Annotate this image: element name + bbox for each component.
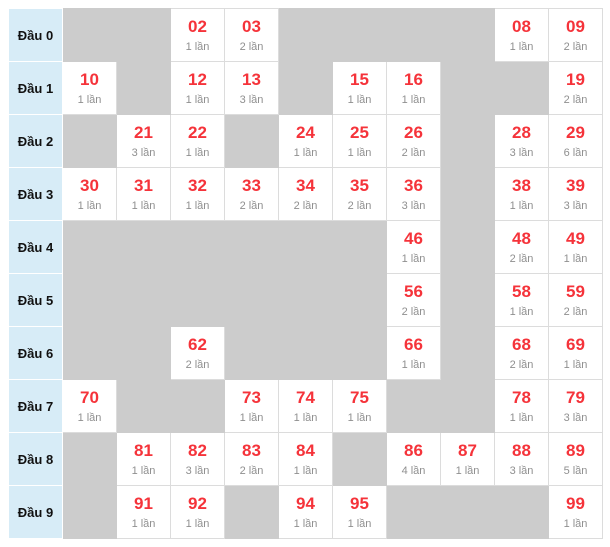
number-cell: 192 lần (549, 62, 603, 115)
cell-number: 10 (63, 70, 116, 90)
table-row: Đầu 8811 lần823 lần832 lần841 lần864 lần… (9, 433, 603, 486)
cell-number: 32 (171, 176, 224, 196)
cell-number: 69 (549, 335, 602, 355)
cell-number: 68 (495, 335, 548, 355)
empty-cell (387, 486, 441, 539)
empty-cell (441, 221, 495, 274)
cell-number: 92 (171, 494, 224, 514)
cell-count: 1 lần (387, 253, 440, 266)
cell-number: 66 (387, 335, 440, 355)
number-cell: 811 lần (117, 433, 171, 486)
empty-cell (441, 168, 495, 221)
number-cell: 622 lần (171, 327, 225, 380)
cell-number: 19 (549, 70, 602, 90)
cell-number: 78 (495, 388, 548, 408)
number-cell: 921 lần (171, 486, 225, 539)
cell-count: 2 lần (225, 465, 278, 478)
table-row: Đầu 9911 lần921 lần941 lần951 lần991 lần (9, 486, 603, 539)
empty-cell (387, 380, 441, 433)
empty-cell (441, 62, 495, 115)
cell-number: 26 (387, 123, 440, 143)
cell-count: 1 lần (171, 94, 224, 107)
cell-number: 94 (279, 494, 332, 514)
row-header: Đầu 2 (9, 115, 63, 168)
number-cell: 092 lần (549, 9, 603, 62)
cell-count: 2 lần (171, 359, 224, 372)
cell-count: 3 lần (549, 200, 602, 213)
row-header: Đầu 0 (9, 9, 63, 62)
empty-cell (63, 327, 117, 380)
cell-count: 1 lần (441, 465, 494, 478)
page: Đầu 0021 lần032 lần081 lần092 lầnĐầu 110… (0, 0, 610, 547)
number-cell: 241 lần (279, 115, 333, 168)
number-cell: 332 lần (225, 168, 279, 221)
cell-number: 30 (63, 176, 116, 196)
table-row: Đầu 2213 lần221 lần241 lần251 lần262 lần… (9, 115, 603, 168)
number-cell: 691 lần (549, 327, 603, 380)
cell-count: 1 lần (495, 412, 548, 425)
cell-count: 3 lần (387, 200, 440, 213)
cell-count: 1 lần (387, 94, 440, 107)
cell-count: 2 lần (495, 359, 548, 372)
table-row: Đầu 3301 lần311 lần321 lần332 lần342 lần… (9, 168, 603, 221)
row-header: Đầu 6 (9, 327, 63, 380)
empty-cell (333, 327, 387, 380)
row-header: Đầu 1 (9, 62, 63, 115)
cell-number: 56 (387, 282, 440, 302)
number-cell: 363 lần (387, 168, 441, 221)
empty-cell (63, 115, 117, 168)
cell-number: 16 (387, 70, 440, 90)
frequency-table: Đầu 0021 lần032 lần081 lần092 lầnĐầu 110… (8, 8, 603, 539)
number-cell: 342 lần (279, 168, 333, 221)
number-cell: 751 lần (333, 380, 387, 433)
empty-cell (441, 327, 495, 380)
cell-number: 87 (441, 441, 494, 461)
cell-number: 31 (117, 176, 170, 196)
cell-count: 3 lần (225, 94, 278, 107)
empty-cell (333, 221, 387, 274)
cell-count: 1 lần (549, 518, 602, 531)
cell-number: 25 (333, 123, 386, 143)
cell-number: 48 (495, 229, 548, 249)
number-cell: 213 lần (117, 115, 171, 168)
cell-count: 3 lần (495, 147, 548, 160)
cell-count: 1 lần (279, 465, 332, 478)
cell-count: 1 lần (333, 518, 386, 531)
cell-count: 1 lần (63, 94, 116, 107)
cell-count: 3 lần (117, 147, 170, 160)
number-cell: 301 lần (63, 168, 117, 221)
cell-number: 46 (387, 229, 440, 249)
cell-number: 99 (549, 494, 602, 514)
cell-number: 21 (117, 123, 170, 143)
table-row: Đầu 1101 lần121 lần133 lần151 lần161 lần… (9, 62, 603, 115)
cell-number: 89 (549, 441, 602, 461)
number-cell: 283 lần (495, 115, 549, 168)
cell-number: 02 (171, 17, 224, 37)
cell-count: 1 lần (279, 518, 332, 531)
empty-cell (117, 274, 171, 327)
empty-cell (225, 327, 279, 380)
empty-cell (63, 9, 117, 62)
cell-count: 1 lần (63, 412, 116, 425)
cell-number: 28 (495, 123, 548, 143)
cell-count: 2 lần (387, 306, 440, 319)
cell-count: 1 lần (495, 200, 548, 213)
cell-count: 3 lần (171, 465, 224, 478)
empty-cell (225, 221, 279, 274)
cell-number: 73 (225, 388, 278, 408)
cell-count: 2 lần (333, 200, 386, 213)
cell-number: 95 (333, 494, 386, 514)
empty-cell (225, 274, 279, 327)
number-cell: 895 lần (549, 433, 603, 486)
empty-cell (333, 274, 387, 327)
cell-number: 15 (333, 70, 386, 90)
row-header: Đầu 5 (9, 274, 63, 327)
number-cell: 871 lần (441, 433, 495, 486)
number-cell: 832 lần (225, 433, 279, 486)
cell-count: 5 lần (549, 465, 602, 478)
row-header: Đầu 8 (9, 433, 63, 486)
empty-cell (63, 274, 117, 327)
number-cell: 781 lần (495, 380, 549, 433)
number-cell: 352 lần (333, 168, 387, 221)
empty-cell (441, 274, 495, 327)
cell-number: 81 (117, 441, 170, 461)
number-cell: 841 lần (279, 433, 333, 486)
cell-number: 29 (549, 123, 602, 143)
empty-cell (117, 380, 171, 433)
empty-cell (63, 486, 117, 539)
cell-number: 58 (495, 282, 548, 302)
cell-number: 35 (333, 176, 386, 196)
number-cell: 151 lần (333, 62, 387, 115)
empty-cell (171, 380, 225, 433)
empty-cell (333, 433, 387, 486)
number-cell: 482 lần (495, 221, 549, 274)
number-cell: 133 lần (225, 62, 279, 115)
number-cell: 251 lần (333, 115, 387, 168)
number-cell: 661 lần (387, 327, 441, 380)
cell-number: 82 (171, 441, 224, 461)
empty-cell (63, 433, 117, 486)
cell-count: 1 lần (171, 518, 224, 531)
number-cell: 262 lần (387, 115, 441, 168)
cell-count: 4 lần (387, 465, 440, 478)
cell-count: 6 lần (549, 147, 602, 160)
number-cell: 562 lần (387, 274, 441, 327)
cell-number: 70 (63, 388, 116, 408)
number-cell: 581 lần (495, 274, 549, 327)
number-cell: 161 lần (387, 62, 441, 115)
number-cell: 701 lần (63, 380, 117, 433)
empty-cell (117, 9, 171, 62)
number-cell: 221 lần (171, 115, 225, 168)
table-row: Đầu 0021 lần032 lần081 lần092 lần (9, 9, 603, 62)
number-cell: 381 lần (495, 168, 549, 221)
cell-count: 1 lần (117, 200, 170, 213)
cell-number: 39 (549, 176, 602, 196)
cell-count: 2 lần (495, 253, 548, 266)
cell-count: 1 lần (549, 359, 602, 372)
cell-number: 86 (387, 441, 440, 461)
cell-number: 49 (549, 229, 602, 249)
row-header: Đầu 7 (9, 380, 63, 433)
number-cell: 991 lần (549, 486, 603, 539)
cell-count: 2 lần (225, 200, 278, 213)
cell-number: 88 (495, 441, 548, 461)
cell-count: 1 lần (549, 253, 602, 266)
cell-count: 2 lần (225, 41, 278, 54)
cell-count: 1 lần (117, 518, 170, 531)
cell-count: 2 lần (549, 94, 602, 107)
frequency-table-body: Đầu 0021 lần032 lần081 lần092 lầnĐầu 110… (9, 9, 603, 539)
cell-number: 59 (549, 282, 602, 302)
number-cell: 741 lần (279, 380, 333, 433)
number-cell: 393 lần (549, 168, 603, 221)
cell-number: 38 (495, 176, 548, 196)
cell-number: 36 (387, 176, 440, 196)
cell-count: 1 lần (279, 412, 332, 425)
number-cell: 032 lần (225, 9, 279, 62)
cell-count: 1 lần (495, 306, 548, 319)
number-cell: 864 lần (387, 433, 441, 486)
cell-number: 79 (549, 388, 602, 408)
cell-number: 74 (279, 388, 332, 408)
number-cell: 491 lần (549, 221, 603, 274)
number-cell: 911 lần (117, 486, 171, 539)
cell-count: 1 lần (387, 359, 440, 372)
number-cell: 101 lần (63, 62, 117, 115)
empty-cell (225, 486, 279, 539)
cell-number: 91 (117, 494, 170, 514)
empty-cell (117, 62, 171, 115)
empty-cell (279, 327, 333, 380)
cell-number: 34 (279, 176, 332, 196)
empty-cell (279, 9, 333, 62)
number-cell: 121 lần (171, 62, 225, 115)
empty-cell (333, 9, 387, 62)
cell-count: 1 lần (495, 41, 548, 54)
empty-cell (225, 115, 279, 168)
number-cell: 883 lần (495, 433, 549, 486)
cell-count: 1 lần (333, 412, 386, 425)
table-row: Đầu 4461 lần482 lần491 lần (9, 221, 603, 274)
row-header: Đầu 9 (9, 486, 63, 539)
cell-number: 12 (171, 70, 224, 90)
empty-cell (441, 380, 495, 433)
number-cell: 461 lần (387, 221, 441, 274)
empty-cell (279, 221, 333, 274)
empty-cell (495, 62, 549, 115)
cell-count: 1 lần (171, 200, 224, 213)
number-cell: 793 lần (549, 380, 603, 433)
cell-number: 22 (171, 123, 224, 143)
cell-count: 2 lần (279, 200, 332, 213)
empty-cell (171, 221, 225, 274)
empty-cell (441, 115, 495, 168)
empty-cell (387, 9, 441, 62)
cell-count: 1 lần (333, 94, 386, 107)
empty-cell (117, 221, 171, 274)
cell-number: 75 (333, 388, 386, 408)
number-cell: 081 lần (495, 9, 549, 62)
number-cell: 021 lần (171, 9, 225, 62)
number-cell: 592 lần (549, 274, 603, 327)
cell-count: 3 lần (549, 412, 602, 425)
cell-number: 62 (171, 335, 224, 355)
number-cell: 731 lần (225, 380, 279, 433)
cell-number: 84 (279, 441, 332, 461)
number-cell: 311 lần (117, 168, 171, 221)
cell-number: 03 (225, 17, 278, 37)
empty-cell (279, 274, 333, 327)
cell-count: 1 lần (171, 147, 224, 160)
row-header: Đầu 3 (9, 168, 63, 221)
cell-count: 1 lần (117, 465, 170, 478)
cell-count: 3 lần (495, 465, 548, 478)
cell-count: 2 lần (549, 306, 602, 319)
cell-number: 08 (495, 17, 548, 37)
number-cell: 682 lần (495, 327, 549, 380)
cell-number: 24 (279, 123, 332, 143)
empty-cell (441, 9, 495, 62)
empty-cell (495, 486, 549, 539)
cell-count: 1 lần (333, 147, 386, 160)
cell-number: 83 (225, 441, 278, 461)
cell-count: 2 lần (387, 147, 440, 160)
cell-number: 13 (225, 70, 278, 90)
cell-count: 1 lần (63, 200, 116, 213)
cell-count: 1 lần (279, 147, 332, 160)
number-cell: 951 lần (333, 486, 387, 539)
empty-cell (441, 486, 495, 539)
number-cell: 941 lần (279, 486, 333, 539)
empty-cell (171, 274, 225, 327)
number-cell: 321 lần (171, 168, 225, 221)
empty-cell (63, 221, 117, 274)
cell-number: 33 (225, 176, 278, 196)
number-cell: 296 lần (549, 115, 603, 168)
cell-count: 2 lần (549, 41, 602, 54)
table-row: Đầu 7701 lần731 lần741 lần751 lần781 lần… (9, 380, 603, 433)
empty-cell (279, 62, 333, 115)
cell-count: 1 lần (171, 41, 224, 54)
empty-cell (117, 327, 171, 380)
cell-count: 1 lần (225, 412, 278, 425)
table-row: Đầu 5562 lần581 lần592 lần (9, 274, 603, 327)
number-cell: 823 lần (171, 433, 225, 486)
table-row: Đầu 6622 lần661 lần682 lần691 lần (9, 327, 603, 380)
row-header: Đầu 4 (9, 221, 63, 274)
cell-number: 09 (549, 17, 602, 37)
